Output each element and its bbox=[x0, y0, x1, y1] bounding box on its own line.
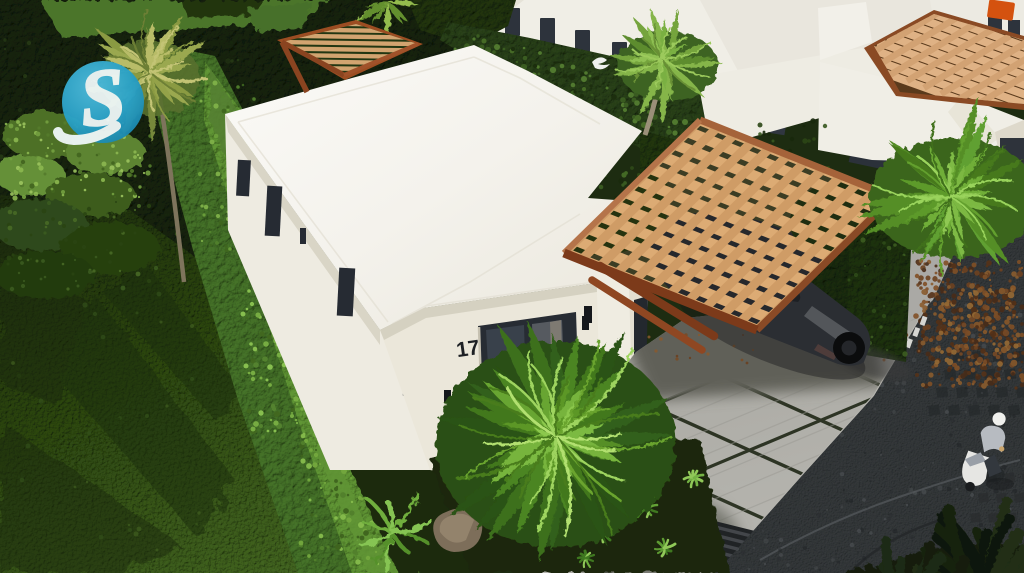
svg-text:17: 17 bbox=[455, 336, 481, 362]
